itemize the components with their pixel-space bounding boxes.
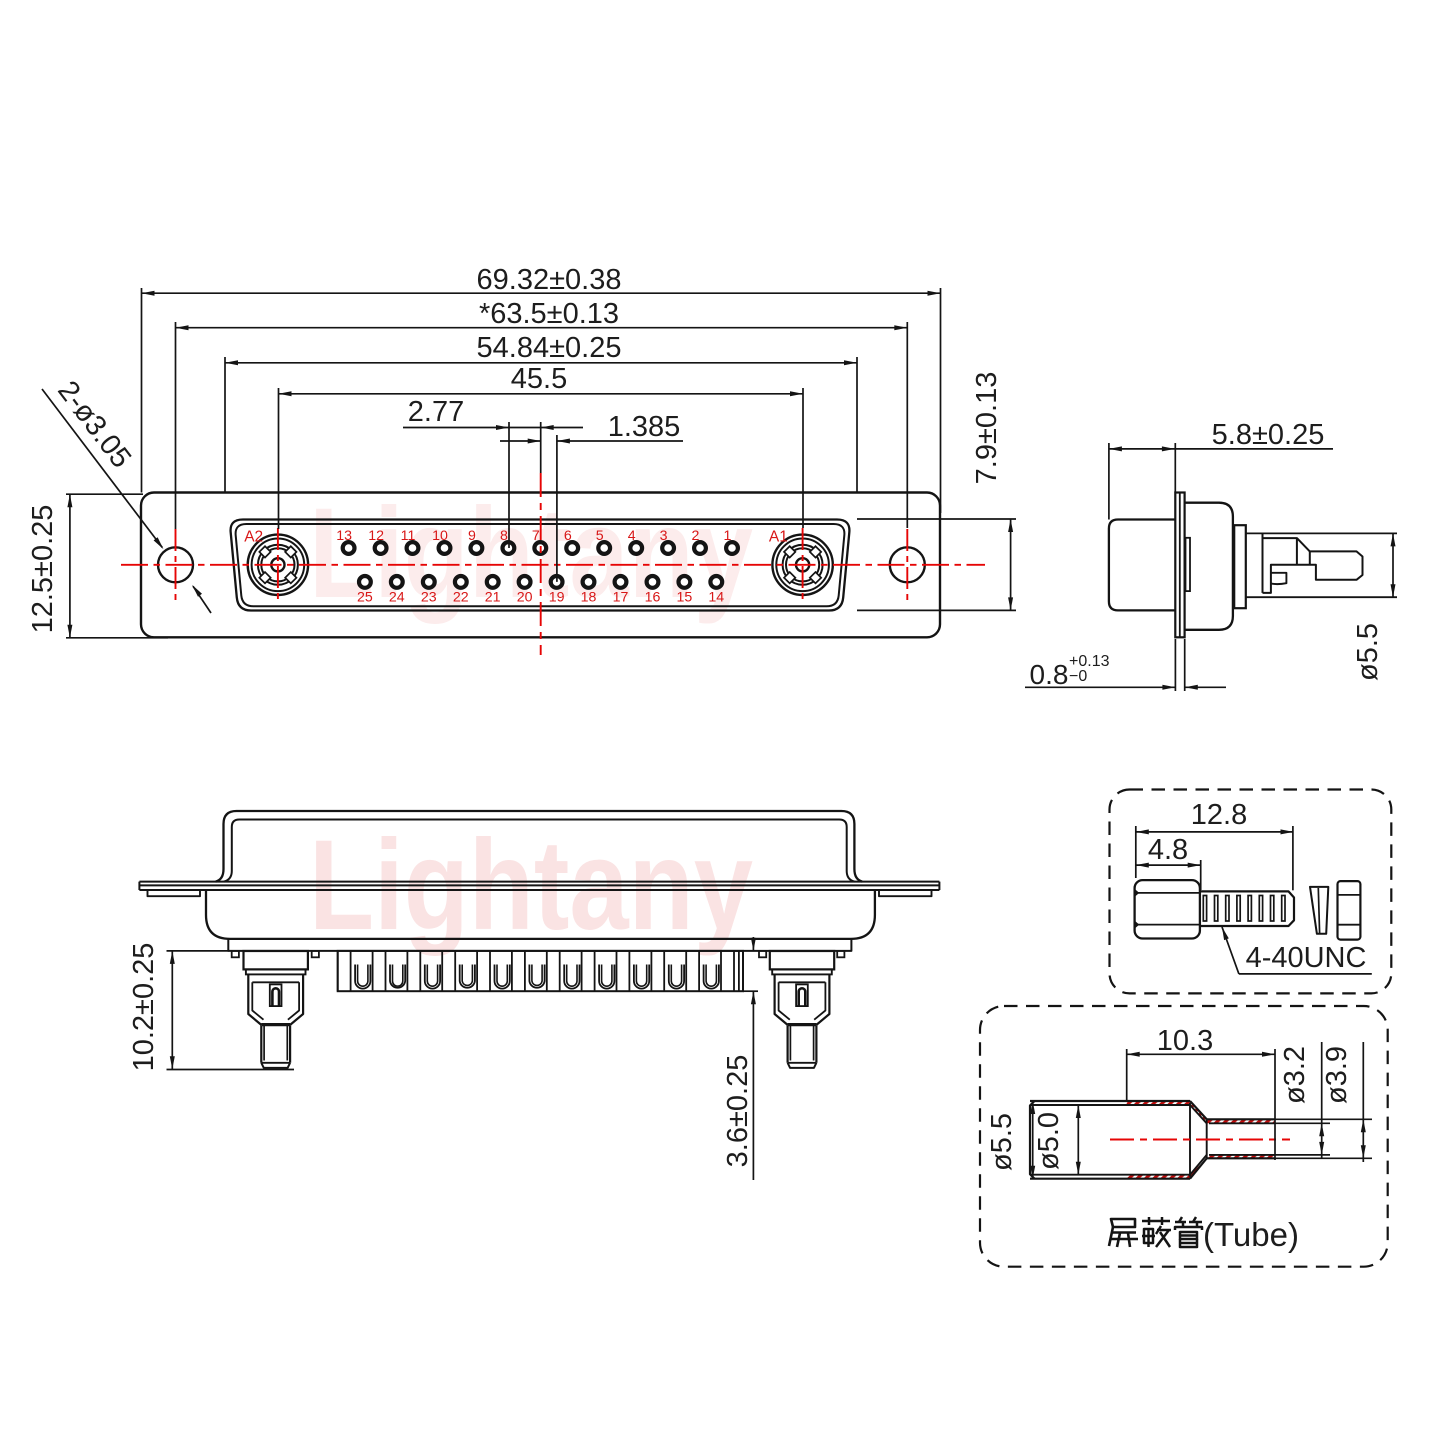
svg-text:8: 8 bbox=[500, 528, 508, 544]
svg-text:1.385: 1.385 bbox=[608, 411, 681, 443]
svg-text:21: 21 bbox=[485, 589, 501, 605]
svg-text:23: 23 bbox=[421, 589, 437, 605]
svg-text:6: 6 bbox=[564, 528, 572, 544]
svg-text:15: 15 bbox=[677, 589, 693, 605]
svg-text:ø5.5: ø5.5 bbox=[1352, 623, 1384, 681]
svg-text:54.84±0.25: 54.84±0.25 bbox=[477, 332, 622, 364]
svg-text:12: 12 bbox=[368, 528, 384, 544]
svg-text:A1: A1 bbox=[769, 528, 788, 545]
svg-text:(Tube): (Tube) bbox=[1203, 1216, 1299, 1253]
svg-text:13: 13 bbox=[336, 528, 352, 544]
svg-text:16: 16 bbox=[645, 589, 661, 605]
svg-text:4-40UNC: 4-40UNC bbox=[1246, 942, 1367, 974]
svg-text:−0: −0 bbox=[1069, 668, 1087, 685]
svg-text:10.3: 10.3 bbox=[1157, 1025, 1213, 1057]
svg-text:20: 20 bbox=[517, 589, 533, 605]
svg-text:14: 14 bbox=[708, 589, 724, 605]
svg-text:69.32±0.38: 69.32±0.38 bbox=[477, 264, 622, 296]
svg-text:24: 24 bbox=[389, 589, 405, 605]
svg-text:5.8±0.25: 5.8±0.25 bbox=[1212, 419, 1325, 451]
svg-text:3.6±0.25: 3.6±0.25 bbox=[722, 1055, 754, 1168]
svg-text:17: 17 bbox=[613, 589, 629, 605]
svg-text:12.5±0.25: 12.5±0.25 bbox=[27, 505, 59, 634]
svg-text:22: 22 bbox=[453, 589, 469, 605]
svg-text:4: 4 bbox=[628, 528, 636, 544]
svg-text:12.8: 12.8 bbox=[1191, 799, 1247, 831]
svg-text:9: 9 bbox=[468, 528, 476, 544]
svg-text:ø5.5: ø5.5 bbox=[986, 1113, 1018, 1171]
svg-text:25: 25 bbox=[357, 589, 373, 605]
svg-text:*63.5±0.13: *63.5±0.13 bbox=[479, 298, 619, 330]
svg-text:10.2±0.25: 10.2±0.25 bbox=[128, 943, 160, 1072]
svg-text:5: 5 bbox=[596, 528, 604, 544]
svg-text:2: 2 bbox=[692, 528, 700, 544]
svg-text:ø5.0: ø5.0 bbox=[1033, 1112, 1065, 1170]
svg-text:1: 1 bbox=[724, 528, 732, 544]
svg-text:18: 18 bbox=[581, 589, 597, 605]
svg-text:19: 19 bbox=[549, 589, 565, 605]
svg-text:3: 3 bbox=[660, 528, 668, 544]
svg-text:45.5: 45.5 bbox=[511, 363, 567, 395]
svg-text:ø3.9: ø3.9 bbox=[1321, 1046, 1353, 1104]
svg-text:2.77: 2.77 bbox=[408, 396, 464, 428]
svg-text:A2: A2 bbox=[244, 528, 263, 545]
svg-text:10: 10 bbox=[432, 528, 448, 544]
svg-text:7: 7 bbox=[532, 528, 540, 544]
svg-text:ø3.2: ø3.2 bbox=[1279, 1046, 1311, 1104]
svg-text:0.8: 0.8 bbox=[1030, 659, 1069, 690]
svg-text:7.9±0.13: 7.9±0.13 bbox=[971, 372, 1003, 485]
svg-text:11: 11 bbox=[401, 528, 416, 544]
svg-text:4.8: 4.8 bbox=[1148, 834, 1188, 866]
